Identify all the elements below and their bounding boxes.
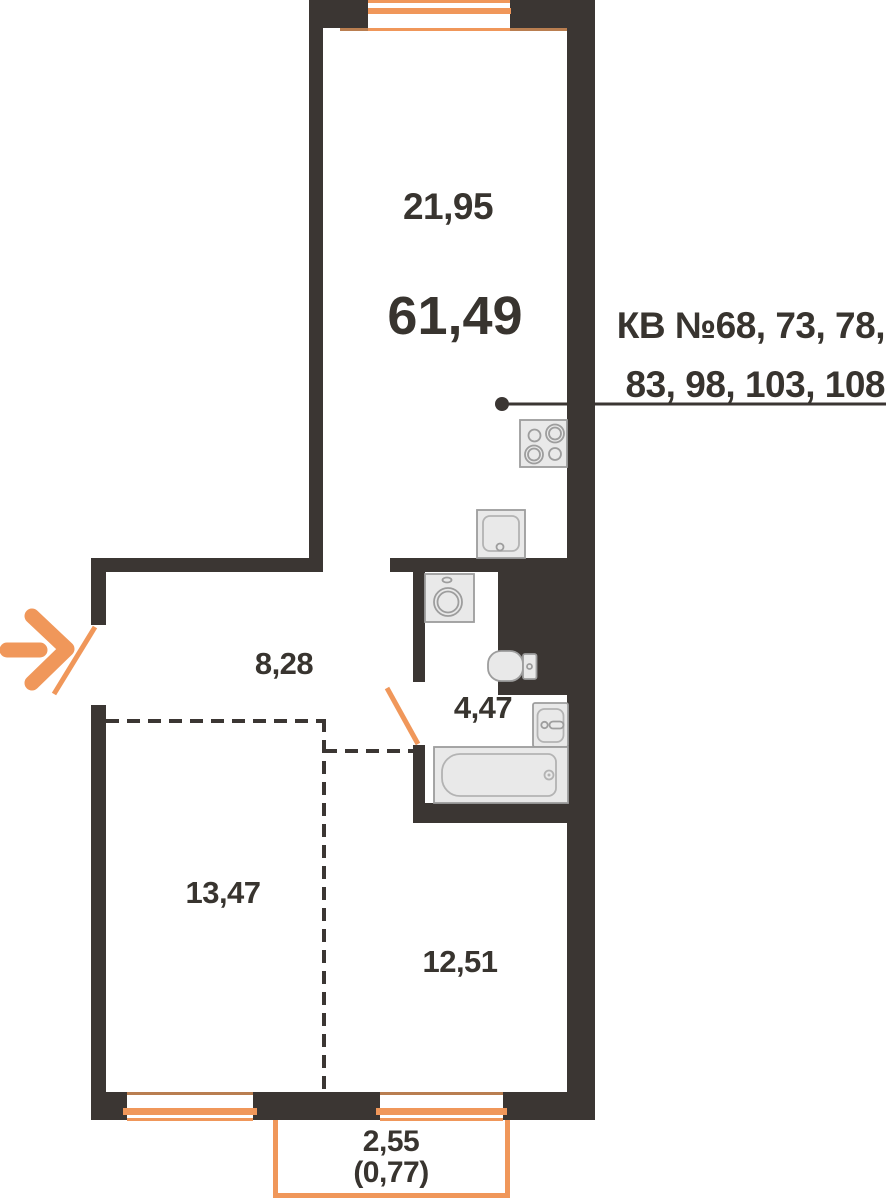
plan-graphics: [0, 0, 887, 1201]
apartment-numbers-line1: КВ №68, 73, 78,: [617, 296, 885, 355]
toilet-icon: [488, 651, 537, 681]
entrance-arrow-icon: [7, 616, 67, 683]
balcony-area-value: 2,55: [353, 1126, 428, 1157]
stove-icon: [520, 420, 567, 467]
kitchen-sink-icon: [477, 510, 525, 558]
bathroom-door-icon: [387, 688, 418, 744]
apartment-numbers: КВ №68, 73, 78, 83, 98, 103, 108: [617, 296, 885, 414]
room-area-label-bathroom: 4,47: [454, 690, 512, 726]
balcony-area-label: 2,55 (0,77): [353, 1126, 428, 1188]
floor-plan: 21,95 61,49 КВ №68, 73, 78, 83, 98, 103,…: [0, 0, 887, 1201]
washing-machine-icon: [425, 574, 474, 622]
room-area-label-hallway: 8,28: [255, 646, 313, 682]
room-area-label-left-room: 13,47: [185, 875, 260, 911]
total-area-label: 61,49: [387, 285, 522, 347]
room-area-label-living-kitchen: 21,95: [403, 186, 493, 228]
room-area-label-right-room: 12,51: [422, 944, 497, 980]
bathroom-sink-icon: [533, 703, 568, 747]
balcony-area-coefficient: (0,77): [353, 1157, 428, 1188]
bathtub-icon: [434, 747, 568, 803]
apartment-numbers-line2: 83, 98, 103, 108: [617, 355, 885, 414]
